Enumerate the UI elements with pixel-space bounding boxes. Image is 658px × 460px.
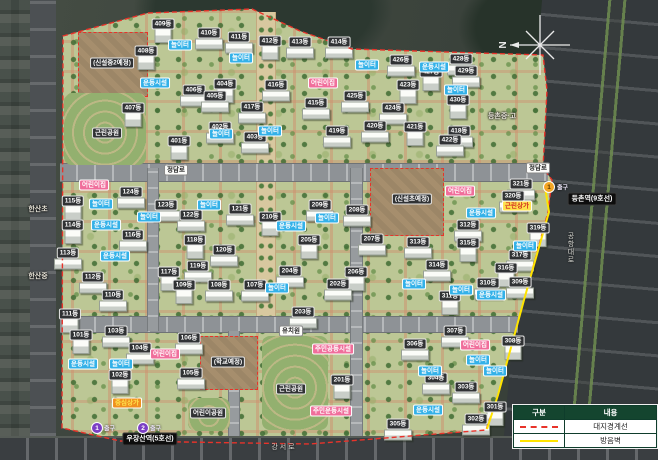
building-label: 104동 bbox=[129, 343, 152, 354]
building-label: 303동 bbox=[455, 382, 478, 393]
building-block bbox=[422, 384, 450, 395]
building-label: 414동 bbox=[328, 37, 351, 48]
building-label: 205동 bbox=[298, 235, 321, 246]
building-label: 422동 bbox=[439, 135, 462, 146]
playground-label: 놀이터 bbox=[513, 241, 537, 252]
building-label: 106동 bbox=[178, 333, 201, 344]
building-label: 208동 bbox=[346, 205, 369, 216]
building-label: 419동 bbox=[326, 126, 349, 137]
east-exit-marker: 1 bbox=[543, 181, 555, 193]
building-label: 417동 bbox=[241, 102, 264, 113]
neighborhood-retail-label: 근린상가 bbox=[502, 201, 532, 212]
offsite-school-label: 등촌중·고 bbox=[488, 111, 516, 121]
road-name-label: 공항대로 bbox=[565, 232, 575, 264]
exit-1-marker: 1 bbox=[91, 422, 103, 434]
building-label: 408동 bbox=[135, 46, 158, 57]
building-label: 103동 bbox=[105, 326, 128, 337]
legend-boundary-label: 대지경계선 bbox=[565, 420, 656, 433]
building-block bbox=[286, 48, 314, 59]
legend-soundwall-label: 방음벽 bbox=[565, 434, 656, 447]
resident-sports-label: 주민운동시설 bbox=[310, 406, 352, 417]
building-block bbox=[423, 271, 451, 282]
building-label: 421동 bbox=[404, 122, 427, 133]
building-label: 112동 bbox=[82, 272, 104, 283]
sports-facility-label: 운동시설 bbox=[140, 78, 170, 89]
building-label: 415동 bbox=[305, 98, 328, 109]
north-cross-road bbox=[60, 163, 548, 182]
building-label: 109동 bbox=[173, 280, 196, 291]
soundwall-swatch bbox=[520, 440, 558, 442]
offsite-school-label: 한산중 bbox=[28, 271, 47, 281]
building-label: 309동 bbox=[509, 277, 532, 288]
building-block bbox=[325, 48, 353, 59]
daycare-center-label: 어린이집 bbox=[445, 186, 475, 197]
playground-label: 놀이터 bbox=[197, 200, 221, 211]
playground-label: 놀이터 bbox=[137, 212, 161, 223]
daycare-center-label: 어린이집 bbox=[79, 180, 109, 191]
building-label: 115동 bbox=[62, 196, 84, 207]
building-block bbox=[341, 102, 369, 113]
building-label: 409동 bbox=[152, 19, 175, 30]
building-block bbox=[201, 102, 229, 113]
building-label: 108동 bbox=[208, 280, 231, 291]
playground-label: 놀이터 bbox=[418, 366, 442, 377]
playground-label: 놀이터 bbox=[109, 359, 133, 370]
offsite-school-label: 한산초 bbox=[28, 204, 47, 214]
planned-school-site-label: (신설중2예정) bbox=[90, 58, 134, 69]
building-label: 302동 bbox=[465, 414, 488, 425]
boundary-swatch bbox=[520, 426, 558, 428]
building-label: 114동 bbox=[62, 220, 84, 231]
building-label: 204동 bbox=[279, 266, 302, 277]
building-block bbox=[262, 91, 290, 102]
building-label: 314동 bbox=[426, 260, 449, 271]
sports-facility-label: 운동시설 bbox=[413, 405, 443, 416]
building-block bbox=[404, 248, 432, 259]
vertical-road-west bbox=[147, 168, 159, 331]
building-label: 429동 bbox=[455, 66, 478, 77]
building-label: 430동 bbox=[447, 95, 470, 106]
building-label: 423동 bbox=[397, 80, 420, 91]
road-name-label: 강서로 bbox=[271, 442, 296, 452]
west-city-blocks bbox=[0, 0, 30, 460]
daycare-center-label: 어린이집 bbox=[308, 78, 338, 89]
building-label: 203동 bbox=[292, 307, 315, 318]
playground-label: 놀이터 bbox=[449, 285, 473, 296]
community-facility-label: 주민공동시설 bbox=[312, 344, 354, 355]
playground-label: 놀이터 bbox=[258, 126, 282, 137]
building-block bbox=[462, 425, 490, 436]
building-label: 305동 bbox=[387, 419, 410, 430]
building-block bbox=[241, 143, 269, 154]
building-label: 307동 bbox=[444, 326, 467, 337]
building-label: 116동 bbox=[122, 230, 144, 241]
building-label: 119동 bbox=[187, 261, 209, 272]
planned-school-site-label: (학교예정) bbox=[211, 357, 245, 368]
building-label: 113동 bbox=[57, 248, 79, 259]
building-label: 315동 bbox=[457, 238, 480, 249]
sports-facility-label: 운동시설 bbox=[100, 251, 130, 262]
playground-label: 놀이터 bbox=[402, 279, 426, 290]
building-label: 319동 bbox=[527, 223, 550, 234]
west-road bbox=[30, 0, 56, 460]
playground-label: 놀이터 bbox=[315, 213, 339, 224]
building-label: 209동 bbox=[309, 200, 332, 211]
park-label: 근린공원 bbox=[92, 128, 122, 139]
building-block bbox=[324, 290, 352, 301]
daycare-center-label: 어린이집 bbox=[460, 340, 490, 351]
building-label: 107동 bbox=[244, 280, 267, 291]
building-label: 121동 bbox=[229, 204, 252, 215]
building-label: 413동 bbox=[289, 37, 312, 48]
sports-facility-label: 운동시설 bbox=[276, 221, 306, 232]
building-block bbox=[99, 301, 127, 312]
building-label: 420동 bbox=[364, 121, 387, 132]
site-plan-map: N 우장산역(5호선) 1 출구 2 출구 1 출구 등촌역(9호선) 구분 내… bbox=[0, 0, 658, 460]
sports-facility-label: 운동시설 bbox=[68, 359, 98, 370]
planned-school-site-label: (신설초예정) bbox=[392, 194, 432, 205]
building-block bbox=[102, 337, 130, 348]
playground-label: 놀이터 bbox=[483, 366, 507, 377]
building-label: 306동 bbox=[404, 339, 427, 350]
building-label: 416동 bbox=[265, 80, 288, 91]
building-label: 405동 bbox=[204, 91, 227, 102]
sports-facility-label: 운동시설 bbox=[476, 290, 506, 301]
exit-2-marker: 2 bbox=[137, 422, 149, 434]
sports-facility-label: 운동시설 bbox=[419, 62, 449, 73]
building-block bbox=[323, 137, 351, 148]
building-label: 426동 bbox=[390, 55, 413, 66]
building-label: 308동 bbox=[502, 336, 525, 347]
building-label: 201동 bbox=[331, 375, 354, 386]
building-label: 206동 bbox=[345, 267, 368, 278]
road-name-label: 정담로 bbox=[526, 163, 550, 174]
playground-label: 놀이터 bbox=[209, 129, 233, 140]
playground-label: 놀이터 bbox=[168, 40, 192, 51]
building-label: 123동 bbox=[155, 200, 178, 211]
building-label: 207동 bbox=[361, 234, 384, 245]
building-label: 412동 bbox=[259, 36, 282, 47]
building-label: 316동 bbox=[495, 263, 518, 274]
station-southwest-label: 우장산역(5호선) bbox=[122, 433, 177, 446]
building-block bbox=[452, 393, 480, 404]
building-label: 313동 bbox=[407, 237, 430, 248]
building-block bbox=[177, 221, 205, 232]
legend-header-type: 구분 bbox=[514, 406, 564, 419]
road-name-label: 정담로 bbox=[164, 165, 188, 176]
building-label: 401동 bbox=[168, 136, 191, 147]
building-label: 202동 bbox=[327, 279, 350, 290]
kindergarten-label: 유치원 bbox=[279, 326, 303, 337]
building-block bbox=[343, 216, 371, 227]
building-block bbox=[358, 245, 386, 256]
central-retail-label: 중심상가 bbox=[112, 398, 142, 409]
building-block bbox=[177, 379, 205, 390]
building-block bbox=[302, 109, 330, 120]
building-label: 425동 bbox=[344, 91, 367, 102]
playground-label: 놀이터 bbox=[229, 53, 253, 64]
building-label: 404동 bbox=[214, 79, 237, 90]
building-block bbox=[506, 288, 534, 299]
building-block bbox=[238, 113, 266, 124]
playground-label: 놀이터 bbox=[444, 85, 468, 96]
building-block bbox=[387, 66, 415, 77]
building-block bbox=[205, 291, 233, 302]
daycare-center-label: 어린이집 bbox=[150, 349, 180, 360]
building-label: 117동 bbox=[158, 267, 180, 278]
exit-2-label: 출구 bbox=[150, 424, 161, 433]
sports-facility-label: 운동시설 bbox=[466, 208, 496, 219]
building-label: 424동 bbox=[382, 103, 405, 114]
sports-facility-label: 운동시설 bbox=[91, 220, 121, 231]
building-label: 110동 bbox=[102, 290, 124, 301]
legend-header-desc: 내용 bbox=[565, 406, 656, 419]
building-block bbox=[436, 146, 464, 157]
building-label: 407동 bbox=[122, 103, 145, 114]
building-label: 310동 bbox=[477, 278, 500, 289]
exit-1-label: 출구 bbox=[104, 424, 115, 433]
building-block bbox=[117, 198, 145, 209]
building-block bbox=[361, 132, 389, 143]
station-east-label: 등촌역(9호선) bbox=[568, 193, 617, 206]
playground-label: 놀이터 bbox=[355, 60, 379, 71]
building-label: 312동 bbox=[457, 220, 480, 231]
building-block bbox=[401, 350, 429, 361]
building-label: 118동 bbox=[184, 235, 206, 246]
legend: 구분 내용 대지경계선 방음벽 bbox=[512, 404, 658, 449]
playground-label: 놀이터 bbox=[265, 283, 289, 294]
building-label: 406동 bbox=[183, 85, 206, 96]
building-label: 102동 bbox=[109, 370, 132, 381]
building-block bbox=[54, 259, 82, 270]
building-block bbox=[195, 39, 223, 50]
building-label: 124동 bbox=[120, 187, 143, 198]
building-label: 120동 bbox=[213, 245, 236, 256]
playground-label: 놀이터 bbox=[89, 199, 113, 210]
building-label: 321동 bbox=[510, 179, 533, 190]
building-label: 101동 bbox=[70, 330, 93, 341]
building-block bbox=[210, 256, 238, 267]
building-label: 301동 bbox=[484, 402, 507, 413]
building-block bbox=[226, 215, 254, 226]
building-label: 105동 bbox=[180, 368, 203, 379]
park-label: 어린이공원 bbox=[190, 408, 226, 419]
park-label: 근린공원 bbox=[276, 384, 306, 395]
building-block bbox=[384, 430, 412, 441]
east-exit-label: 출구 bbox=[557, 183, 568, 192]
playground-label: 놀이터 bbox=[466, 355, 490, 366]
building-label: 111동 bbox=[59, 309, 81, 320]
building-label: 410동 bbox=[198, 28, 221, 39]
building-label: 411동 bbox=[228, 32, 250, 43]
building-label: 122동 bbox=[180, 210, 203, 221]
building-label: 428동 bbox=[450, 54, 473, 65]
